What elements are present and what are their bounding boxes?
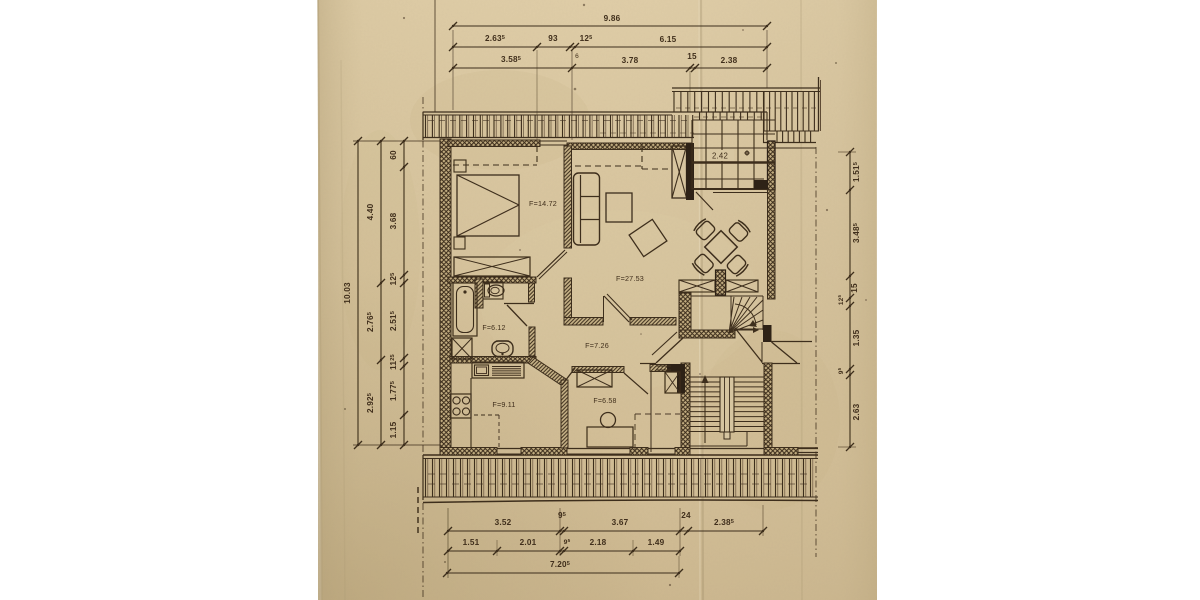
svg-text:1.51: 1.51 [463,538,480,547]
svg-text:2.01: 2.01 [520,538,537,547]
svg-text:60: 60 [389,150,398,160]
svg-text:F=6.58: F=6.58 [593,398,616,405]
svg-text:3.68: 3.68 [389,212,398,229]
svg-text:15: 15 [687,52,697,61]
svg-text:F=7.26: F=7.26 [585,341,609,350]
svg-text:1.15: 1.15 [389,421,398,438]
svg-text:93: 93 [548,34,558,43]
svg-text:F=14.72: F=14.72 [529,199,557,208]
svg-text:15: 15 [850,283,859,293]
svg-text:F=9.11: F=9.11 [492,400,515,409]
svg-text:F=27.53: F=27.53 [616,274,644,283]
svg-text:6: 6 [575,53,579,60]
svg-text:4.40: 4.40 [366,203,375,220]
svg-text:F=6.12: F=6.12 [482,325,505,332]
svg-text:10.03: 10.03 [343,282,352,304]
svg-text:1.49: 1.49 [648,538,665,547]
svg-text:3.52: 3.52 [495,518,512,527]
svg-text:2.18: 2.18 [590,538,607,547]
svg-text:2.63: 2.63 [852,403,861,420]
svg-text:2.42: 2.42 [712,152,728,161]
svg-text:2.38: 2.38 [721,56,738,65]
svg-text:6.15: 6.15 [660,35,677,44]
svg-text:9.86: 9.86 [604,14,621,23]
svg-text:24: 24 [681,511,691,520]
svg-text:3.67: 3.67 [612,518,629,527]
svg-text:1.35: 1.35 [852,329,861,346]
svg-text:3.78: 3.78 [622,56,639,65]
